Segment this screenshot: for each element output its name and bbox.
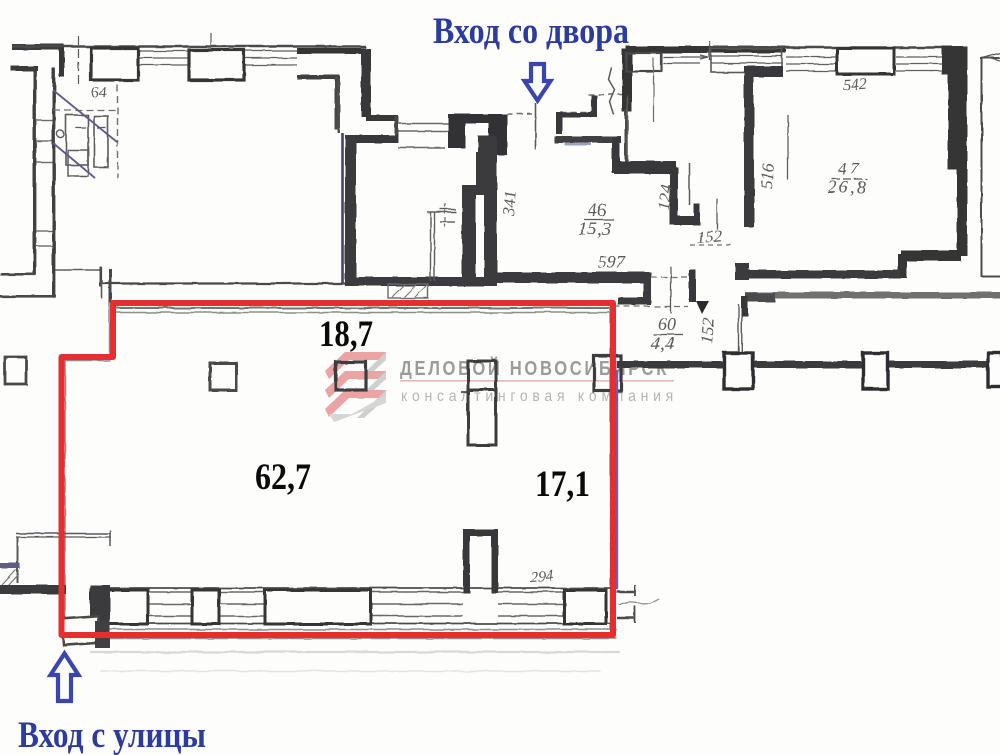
svg-text:341: 341 <box>499 190 520 218</box>
svg-text:47: 47 <box>838 159 863 178</box>
svg-text:64: 64 <box>91 85 108 102</box>
svg-text:Вход с улицы: Вход с улицы <box>18 715 206 755</box>
svg-text:62,7: 62,7 <box>255 457 311 498</box>
svg-text:46: 46 <box>588 200 606 220</box>
svg-text:597: 597 <box>598 252 626 272</box>
svg-text:152: 152 <box>697 317 718 345</box>
svg-text:60: 60 <box>658 314 676 334</box>
svg-text:542: 542 <box>842 76 867 94</box>
svg-text:15,3: 15,3 <box>578 219 611 240</box>
svg-text:294: 294 <box>529 568 554 586</box>
svg-text:26,8: 26,8 <box>828 177 868 197</box>
svg-text:124: 124 <box>654 183 676 211</box>
svg-text:4,4: 4,4 <box>651 334 675 355</box>
svg-text:152: 152 <box>696 226 723 247</box>
svg-text:18,7: 18,7 <box>319 314 373 355</box>
svg-text:Вход со двора: Вход со двора <box>433 11 629 52</box>
svg-text:516: 516 <box>757 162 777 189</box>
svg-text:консалтинговая компания: консалтинговая компания <box>401 388 678 405</box>
svg-text:17,1: 17,1 <box>535 464 590 505</box>
